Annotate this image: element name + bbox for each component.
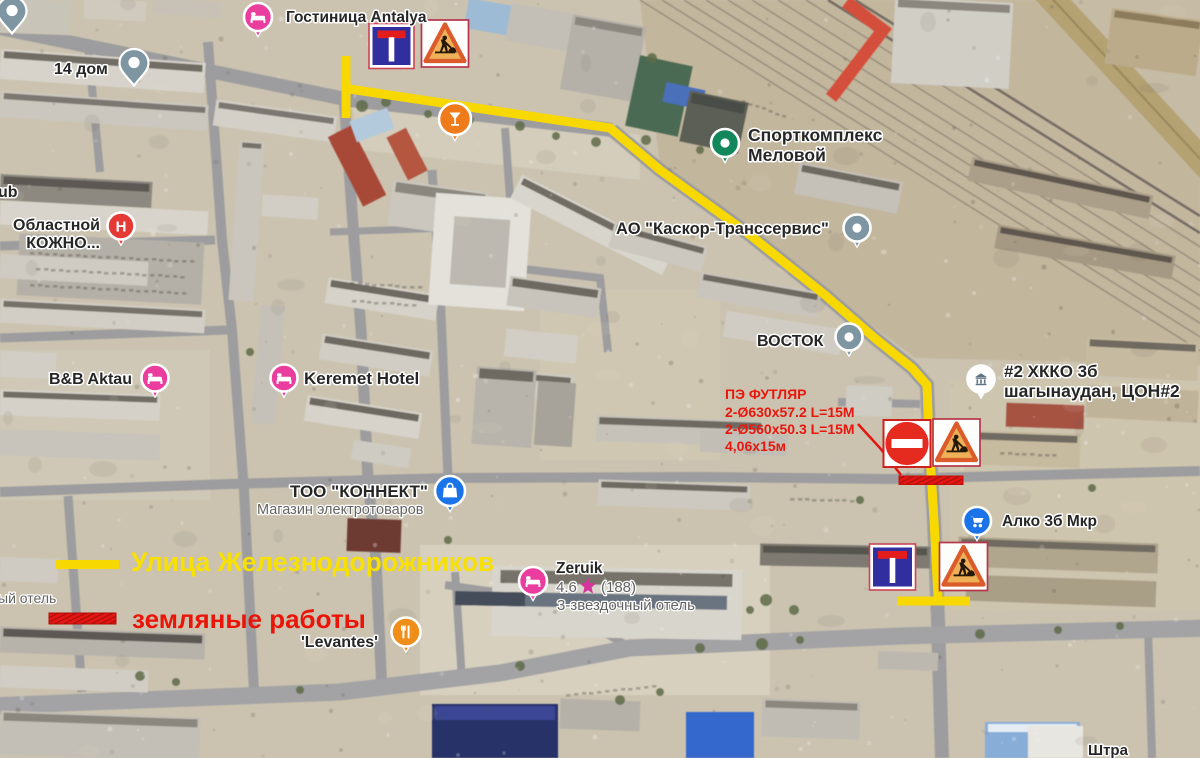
svg-text:'Levantes': 'Levantes'	[301, 634, 378, 651]
svg-text:ПЭ ФУТЛЯР: ПЭ ФУТЛЯР	[725, 386, 806, 402]
svg-text:3-звездочный отель: 3-звездочный отель	[557, 597, 695, 614]
svg-text:КОЖНО...: КОЖНО...	[26, 235, 100, 252]
svg-text:Улица Железнодорожников: Улица Железнодорожников	[131, 547, 494, 577]
svg-text:Keremet Hotel: Keremet Hotel	[304, 369, 419, 388]
svg-text:(188): (188)	[601, 579, 636, 596]
svg-text:шагынаудан, ЦОН#2: шагынаудан, ЦОН#2	[1004, 381, 1180, 401]
svg-text:ТОО "КОННЕКТ": ТОО "КОННЕКТ"	[290, 482, 428, 501]
svg-text:4.6: 4.6	[556, 579, 577, 596]
svg-text:14 дом: 14 дом	[54, 61, 108, 78]
svg-text:H: H	[116, 219, 127, 236]
svg-text:B&B Aktau: B&B Aktau	[49, 371, 132, 388]
svg-text:2-Ø630x57.2 L=15М: 2-Ø630x57.2 L=15М	[725, 404, 855, 420]
svg-text:#2 ХККО 3б: #2 ХККО 3б	[1004, 362, 1098, 381]
svg-text:АО "Каскор-Транссервис": АО "Каскор-Транссервис"	[616, 220, 829, 238]
svg-text:4,06x15м: 4,06x15м	[725, 438, 786, 454]
svg-text:Спорткомплекс: Спорткомплекс	[748, 125, 883, 145]
svg-text:Алко 3б Мкр: Алко 3б Мкр	[1002, 513, 1097, 530]
svg-text:Магазин электротоваров: Магазин электротоваров	[257, 502, 424, 518]
svg-text:ub: ub	[0, 184, 18, 201]
svg-text:ый отель: ый отель	[0, 590, 56, 606]
svg-text:2-Ø560x50.3 L=15М: 2-Ø560x50.3 L=15М	[725, 421, 855, 437]
svg-text:Областной: Областной	[13, 217, 100, 234]
svg-text:земляные работы: земляные работы	[132, 604, 366, 634]
svg-text:Zeruik: Zeruik	[556, 560, 603, 577]
svg-text:Штра: Штра	[1088, 742, 1129, 758]
svg-text:Меловой: Меловой	[748, 145, 826, 165]
svg-text:Гостиница Antalya: Гостиница Antalya	[286, 9, 427, 26]
svg-text:ВОСТОК: ВОСТОК	[757, 333, 824, 350]
